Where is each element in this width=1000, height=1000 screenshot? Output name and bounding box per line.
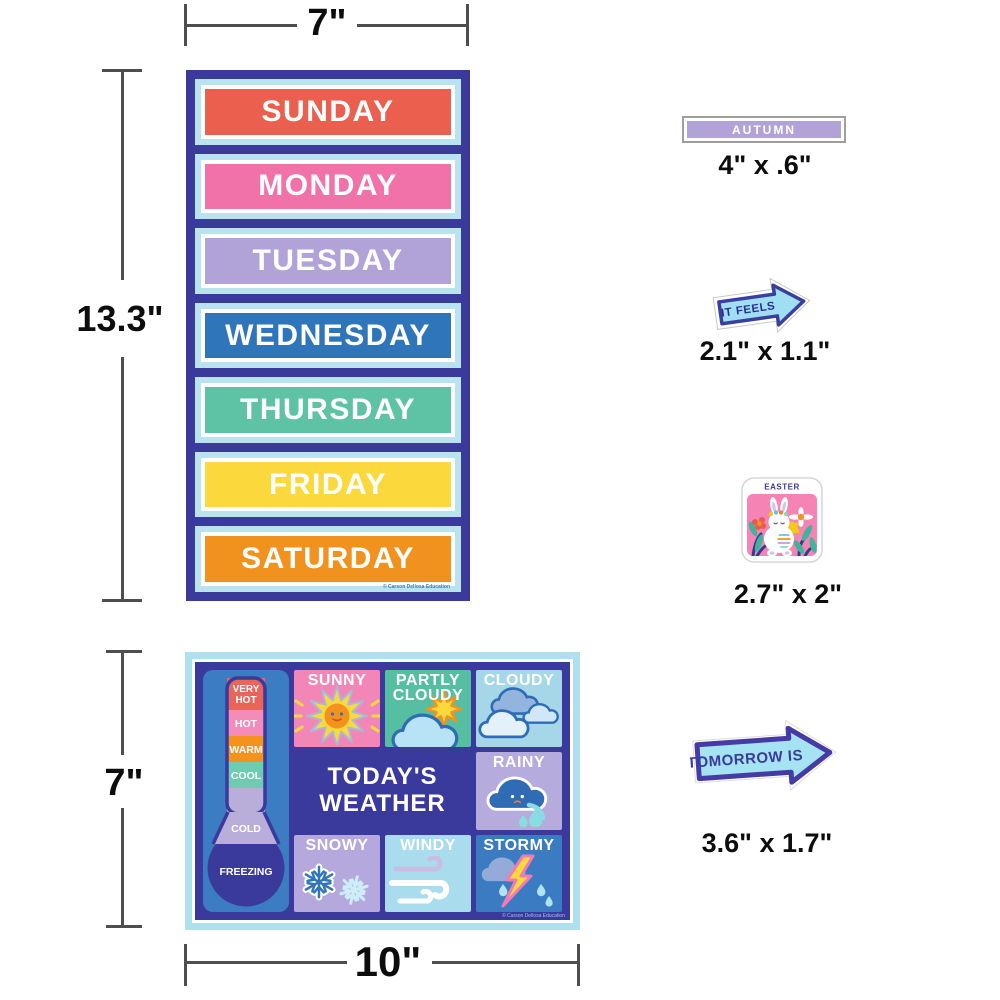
sunny-label: SUNNY xyxy=(294,673,380,688)
days-height-label: 13.3" xyxy=(58,298,182,340)
weather-title-line2: WEATHER xyxy=(319,791,446,818)
tomorrow-size-label: 3.6" x 1.7" xyxy=(667,828,867,859)
weather-title-cell: TODAY'S WEATHER xyxy=(294,752,471,829)
svg-text:COLD: COLD xyxy=(231,823,261,835)
copyright-text: © Carson Dellosa Education xyxy=(502,913,565,919)
weather-height-label: 7" xyxy=(84,762,164,805)
copyright-text: © Carson Dellosa Education xyxy=(383,584,450,590)
easter-label: EASTER xyxy=(764,483,799,492)
windy-label: WINDY xyxy=(385,838,471,853)
dim-line xyxy=(121,808,124,925)
todays-weather-chart: VERY HOT HOT WARM COOL COLD FREEZING SUN… xyxy=(185,652,580,930)
dim-tick xyxy=(577,944,580,986)
it-feels-arrow: IT FEELS xyxy=(708,271,815,342)
day-card-monday: MONDAY xyxy=(195,154,461,220)
autumn-strip-card: AUTUMN xyxy=(682,116,846,143)
day-card-tuesday: TUESDAY xyxy=(195,228,461,294)
day-card-saturday: SATURDAY xyxy=(195,526,461,592)
partly-cloudy-label-line2: CLOUDY xyxy=(393,687,464,704)
snowflakes-icon xyxy=(297,852,377,910)
day-card-friday: FRIDAY xyxy=(195,452,461,518)
weather-cell-sunny: SUNNY xyxy=(294,670,380,747)
day-card-sunday: SUNDAY xyxy=(195,79,461,145)
clouds-icon xyxy=(477,685,561,743)
thermometer-panel: VERY HOT HOT WARM COOL COLD FREEZING xyxy=(203,670,289,912)
cloudy-label: CLOUDY xyxy=(476,673,562,688)
days-of-week-chart: SUNDAY MONDAY TUESDAY WEDNESDAY THURSDAY… xyxy=(186,70,470,601)
dim-tick xyxy=(184,944,187,986)
autumn-size-label: 4" x .6" xyxy=(665,150,865,181)
dim-tick xyxy=(102,599,142,602)
day-label-tuesday: TUESDAY xyxy=(205,238,451,284)
wind-icon xyxy=(388,856,468,908)
product-dimensions-diagram: 7" 13.3" SUNDAY MONDAY TUESDAY WEDNESDAY… xyxy=(0,0,1000,1000)
day-label-wednesday: WEDNESDAY xyxy=(205,313,451,359)
dim-line xyxy=(187,24,297,27)
dim-line xyxy=(432,961,580,964)
svg-text:COOL: COOL xyxy=(231,770,262,782)
storm-cloud-icon xyxy=(477,852,561,910)
snowy-label: SNOWY xyxy=(294,838,380,853)
day-card-thursday: THURSDAY xyxy=(195,377,461,443)
tomorrow-is-arrow: TOMORROW IS xyxy=(687,713,842,801)
autumn-label: AUTUMN xyxy=(687,121,841,138)
sun-icon xyxy=(294,685,380,745)
dim-line xyxy=(357,24,467,27)
weather-cell-windy: WINDY xyxy=(385,835,471,912)
weather-width-label: 10" xyxy=(338,938,438,986)
day-card-wednesday: WEDNESDAY xyxy=(195,303,461,369)
weather-cell-snowy: SNOWY xyxy=(294,835,380,912)
dim-tick xyxy=(106,650,142,653)
weather-title-line1: TODAY'S xyxy=(327,764,437,791)
days-width-label: 7" xyxy=(297,2,357,45)
weather-cell-rainy: RAINY xyxy=(476,752,562,829)
svg-text:WARM: WARM xyxy=(229,744,262,756)
easter-egg xyxy=(777,532,791,549)
dim-tick xyxy=(106,925,142,928)
day-label-thursday: THURSDAY xyxy=(205,387,451,433)
it-feels-size-label: 2.1" x 1.1" xyxy=(665,336,865,367)
svg-text:HOT: HOT xyxy=(235,695,256,706)
svg-text:HOT: HOT xyxy=(235,718,258,730)
weather-cell-partly-cloudy: PARTLY CLOUDY xyxy=(385,670,471,747)
dim-line xyxy=(187,961,347,964)
day-label-friday: FRIDAY xyxy=(205,462,451,508)
easter-card: EASTER xyxy=(741,477,823,563)
stormy-label: STORMY xyxy=(476,838,562,853)
weather-cell-stormy: STORMY xyxy=(476,835,562,912)
svg-text:FREEZING: FREEZING xyxy=(219,866,272,878)
dim-line xyxy=(121,357,124,599)
rain-cloud-icon xyxy=(479,771,559,827)
dim-line xyxy=(121,72,124,280)
weather-cell-cloudy: CLOUDY xyxy=(476,670,562,747)
day-label-sunday: SUNDAY xyxy=(205,89,451,135)
day-label-saturday: SATURDAY xyxy=(205,536,451,582)
thermometer-icon: VERY HOT HOT WARM COOL COLD FREEZING xyxy=(203,672,289,910)
easter-size-label: 2.7" x 2" xyxy=(688,579,888,610)
rainy-label: RAINY xyxy=(476,755,562,770)
day-label-monday: MONDAY xyxy=(205,164,451,210)
svg-text:VERY: VERY xyxy=(233,684,260,695)
dim-line xyxy=(121,653,124,755)
